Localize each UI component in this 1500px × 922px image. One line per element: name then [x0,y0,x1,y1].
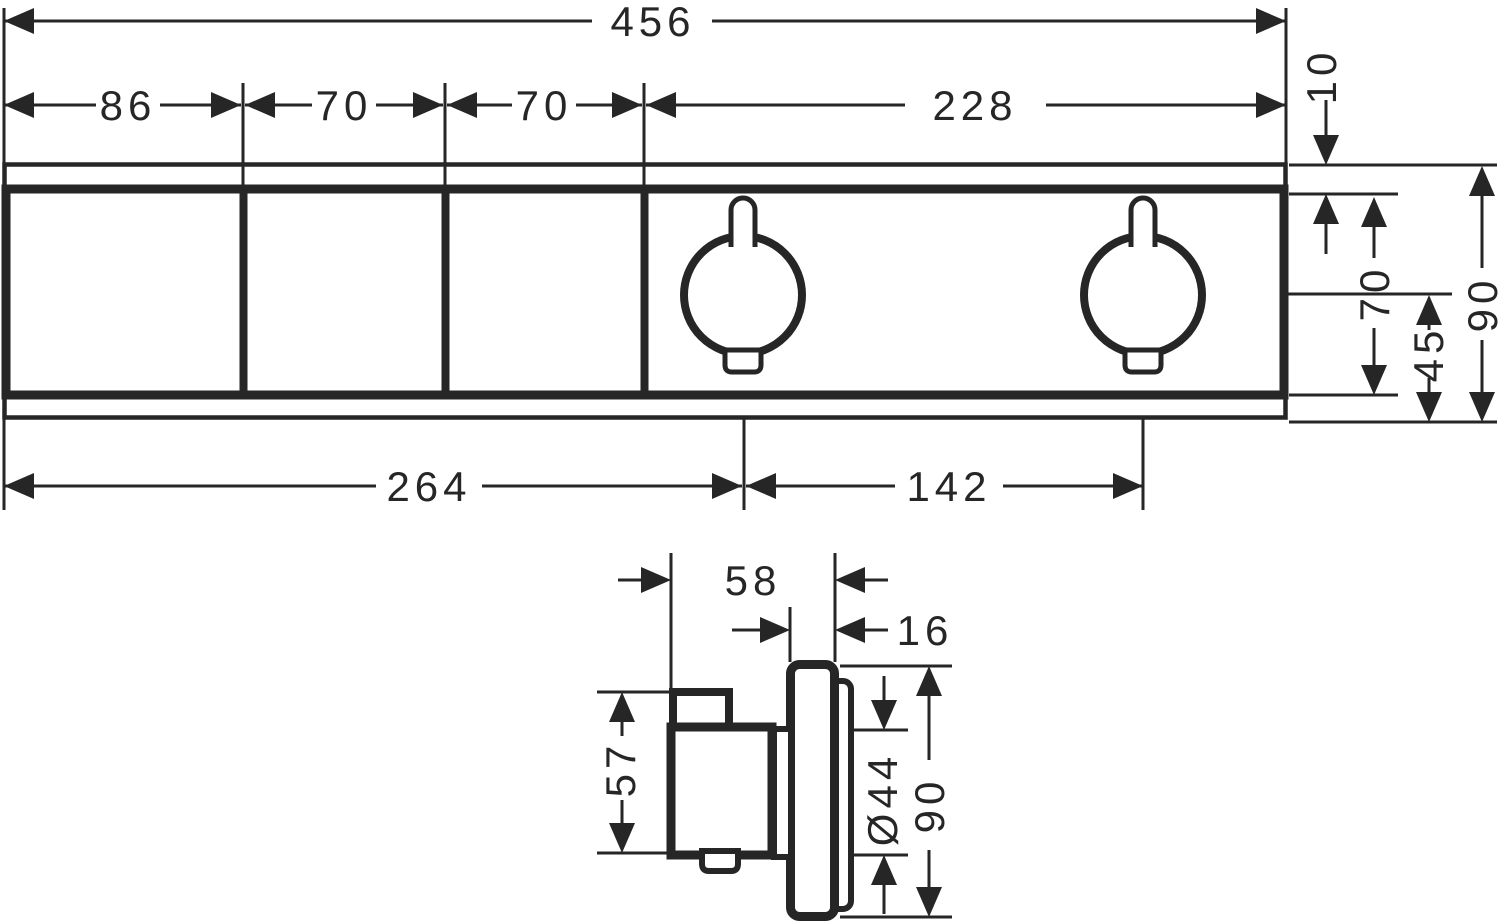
dim-center-to-bottom: 45 [1405,295,1452,422]
dim-escutcheon-height-label: 90 [906,777,953,834]
dim-top-inset: 10 [1298,48,1345,254]
handle-2-grip-tab [1125,350,1161,372]
dim-side-top: 58 16 [618,553,953,690]
dim-handle-diameter: Ø44 [850,676,908,914]
dim-module1-label: 86 [100,82,157,129]
handle-1-grip-tab [725,350,761,372]
dimensional-drawing: 456 86 70 70 228 [0,0,1500,922]
dim-right-side: 10 70 45 90 [1287,48,1500,422]
side-view [671,665,851,917]
dim-handle-spacing-label: 142 [906,463,991,510]
technical-drawing-page: 456 86 70 70 228 [0,0,1500,922]
dim-overall-height-label: 90 [1459,276,1500,333]
handle-grip-tab-side [702,851,738,871]
dim-panel-height-label: 70 [1351,265,1398,322]
dim-panel-height: 70 [1351,197,1398,395]
escutcheon-plate [791,665,835,917]
dim-top-inset-label: 10 [1298,48,1345,105]
dim-bottom-row: 264 142 [4,418,1143,510]
dim-escutcheon-depth-label: 16 [897,607,954,654]
dim-handle-diameter-label: Ø44 [859,752,906,846]
dim-module3-label: 70 [516,82,573,129]
dim-overall-width-label: 456 [610,0,695,45]
dim-left-to-handle1-label: 264 [386,463,471,510]
dim-overall-height: 90 [1459,166,1500,422]
dim-total-projection-label: 58 [725,557,782,604]
handle-body [671,727,772,855]
dim-center-to-bottom-label: 45 [1405,326,1452,383]
dim-thermostat-section-label: 228 [932,82,1017,129]
front-view [5,165,1286,418]
dim-handle-height-label: 57 [597,741,644,798]
handle-collar [774,729,791,857]
dim-module2-label: 70 [316,82,373,129]
